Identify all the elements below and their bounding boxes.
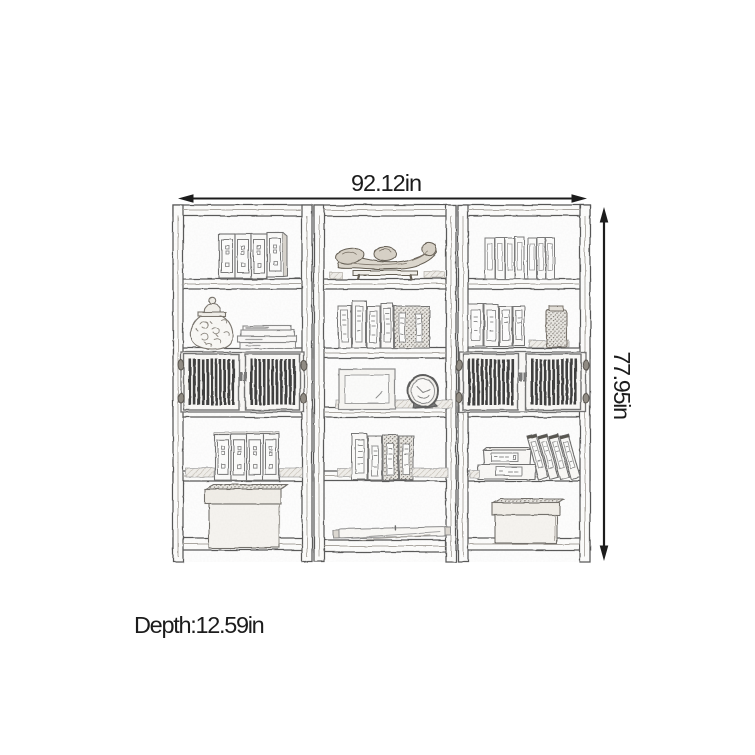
- svg-text:77.95in: 77.95in: [609, 351, 635, 419]
- svg-text:92.12in: 92.12in: [351, 170, 421, 196]
- svg-text:Depth:12.59in: Depth:12.59in: [134, 612, 264, 638]
